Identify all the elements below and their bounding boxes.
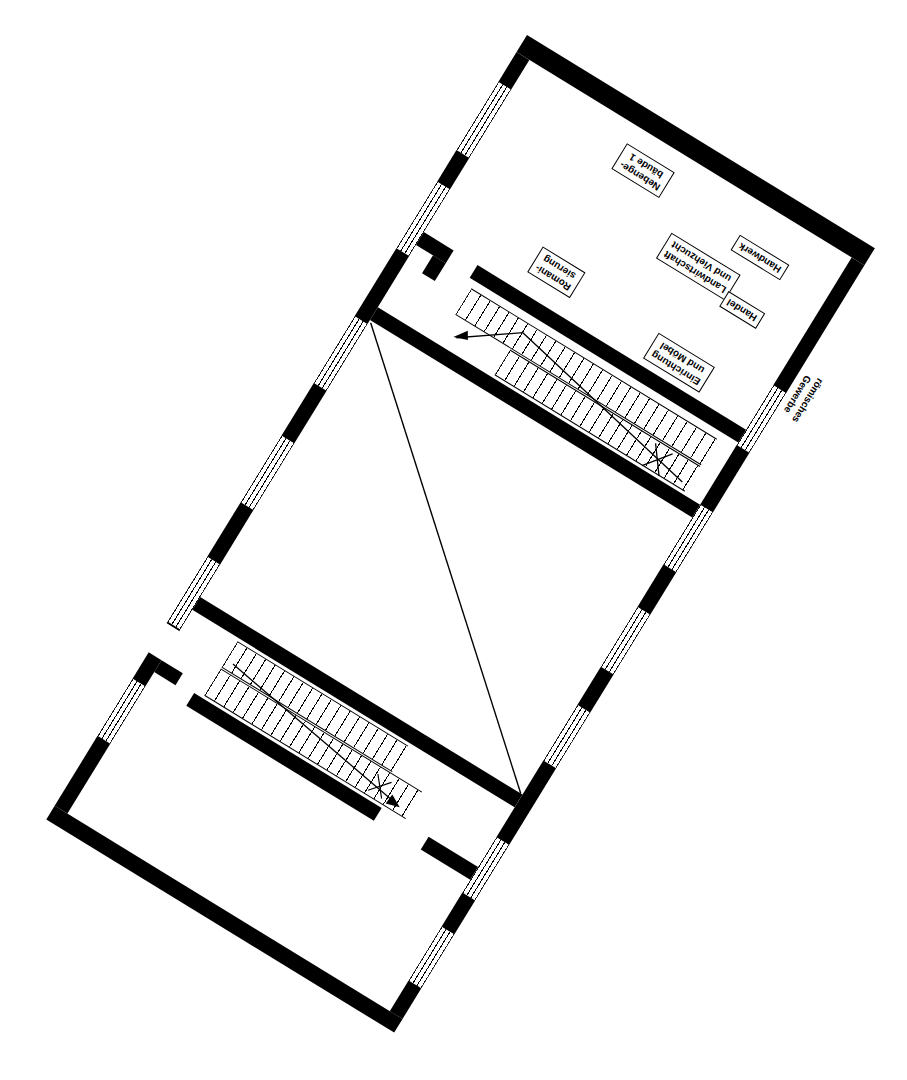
room-label-romanisierung: Romani- sierung (527, 246, 585, 298)
window (409, 927, 455, 989)
wall-segment (55, 736, 111, 814)
exterior-wall-top (517, 35, 875, 265)
partition-wall-d-right (421, 837, 478, 880)
wall-segment (496, 760, 556, 845)
window (601, 607, 650, 675)
wall-segment (281, 383, 326, 444)
wall-segment (390, 980, 422, 1019)
wall-segment (207, 502, 253, 564)
wall-segment (577, 667, 613, 713)
wall-segment (700, 445, 749, 513)
wall-segment (637, 564, 676, 614)
room-label-nebengebaeude-1: Nebenge- bäude 1 (612, 143, 675, 198)
window (98, 679, 146, 744)
label-line: Handwerk (737, 241, 784, 275)
window (737, 385, 786, 453)
wall-segment (441, 893, 475, 935)
window (456, 82, 511, 158)
floor-plan: Nebenge- bäude 1 Handwerk Landwirtschaft… (46, 35, 875, 1033)
room-label-handel: Handel (719, 291, 765, 329)
stair-a-arrowhead (453, 326, 472, 344)
window (314, 316, 368, 390)
window (543, 705, 590, 768)
label-line: Handel (725, 297, 759, 324)
plan-canvas: Nebenge- bäude 1 Handwerk Landwirtschaft… (0, 0, 907, 1080)
window (241, 436, 295, 510)
exterior-wall-bottom (46, 806, 402, 1033)
wall-segment (437, 150, 469, 189)
entrance-door-jamb (154, 660, 183, 685)
